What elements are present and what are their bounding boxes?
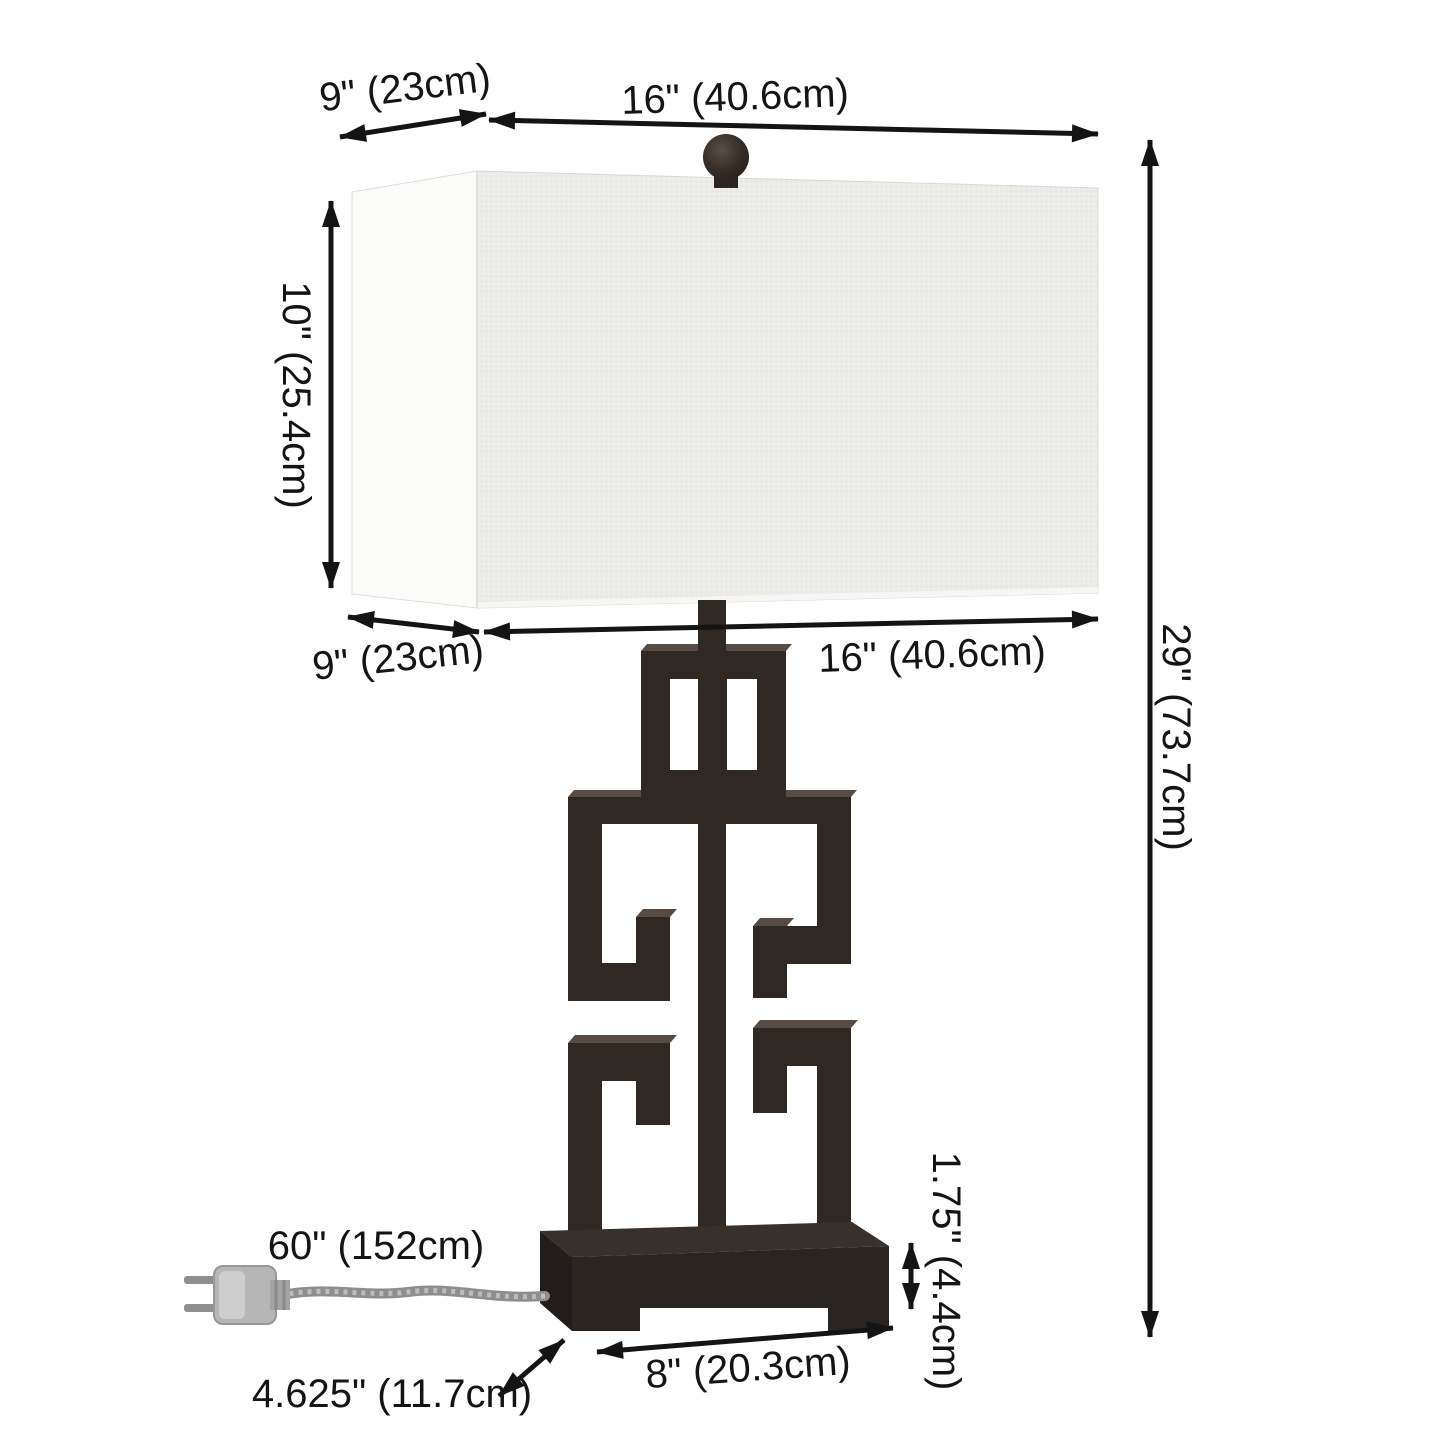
top-frame-window-left: [670, 679, 699, 770]
label-cord-length: 60" (152cm): [268, 1224, 485, 1268]
upper-left-stub: [636, 917, 670, 1001]
lower-right-stub: [753, 1066, 787, 1113]
diagram-canvas: 9" (23cm) 16" (40.6cm) 10" (25.4cm) 9" (…: [0, 0, 1445, 1445]
plug-prong-bottom: [184, 1304, 218, 1312]
lower-left-top-run: [568, 1043, 670, 1081]
shade-front-face: [477, 171, 1098, 608]
arrow-shade-top-width: [489, 120, 1098, 134]
label-shade-height: 10" (25.4cm): [274, 281, 318, 509]
center-rod: [698, 600, 726, 1232]
label-base-height: 1.75" (4.4cm): [924, 1152, 968, 1391]
upper-left-stub-cap: [636, 909, 677, 917]
upper-right-stub: [753, 926, 787, 998]
label-overall-height: 29" (73.7cm): [1154, 623, 1198, 851]
lower-left-stub: [636, 1081, 670, 1125]
finial-ball: [703, 134, 749, 180]
label-base-depth: 4.625" (11.7cm): [252, 1372, 532, 1416]
shade-side-face: [352, 171, 477, 608]
arrow-shade-top-depth: [340, 114, 486, 137]
top-frame-window-right: [727, 679, 757, 770]
label-shade-bottom-depth: 9" (23cm): [310, 627, 486, 689]
plug-face: [219, 1271, 245, 1319]
base-front-face: [572, 1246, 889, 1331]
power-cord: [288, 1290, 545, 1296]
lamp-dimension-diagram: 9" (23cm) 16" (40.6cm) 10" (25.4cm) 9" (…: [0, 0, 1445, 1445]
lower-right-outer-bar: [817, 1028, 851, 1232]
lamp-base: [540, 1222, 889, 1331]
label-shade-top-width: 16" (40.6cm): [620, 71, 849, 123]
lower-left-run-cap: [568, 1035, 677, 1043]
power-plug: [184, 1266, 290, 1324]
lamp-body: [568, 600, 858, 1232]
lower-right-bar-cap: [753, 1020, 858, 1028]
label-shade-bottom-width: 16" (40.6cm): [817, 629, 1046, 681]
upper-top-bar: [568, 797, 851, 824]
plug-collar: [270, 1280, 290, 1310]
upper-right-stub-cap: [753, 918, 794, 926]
label-shade-top-depth: 9" (23cm): [317, 56, 493, 121]
plug-prong-top: [184, 1276, 218, 1284]
lamp-shade: [352, 171, 1098, 608]
